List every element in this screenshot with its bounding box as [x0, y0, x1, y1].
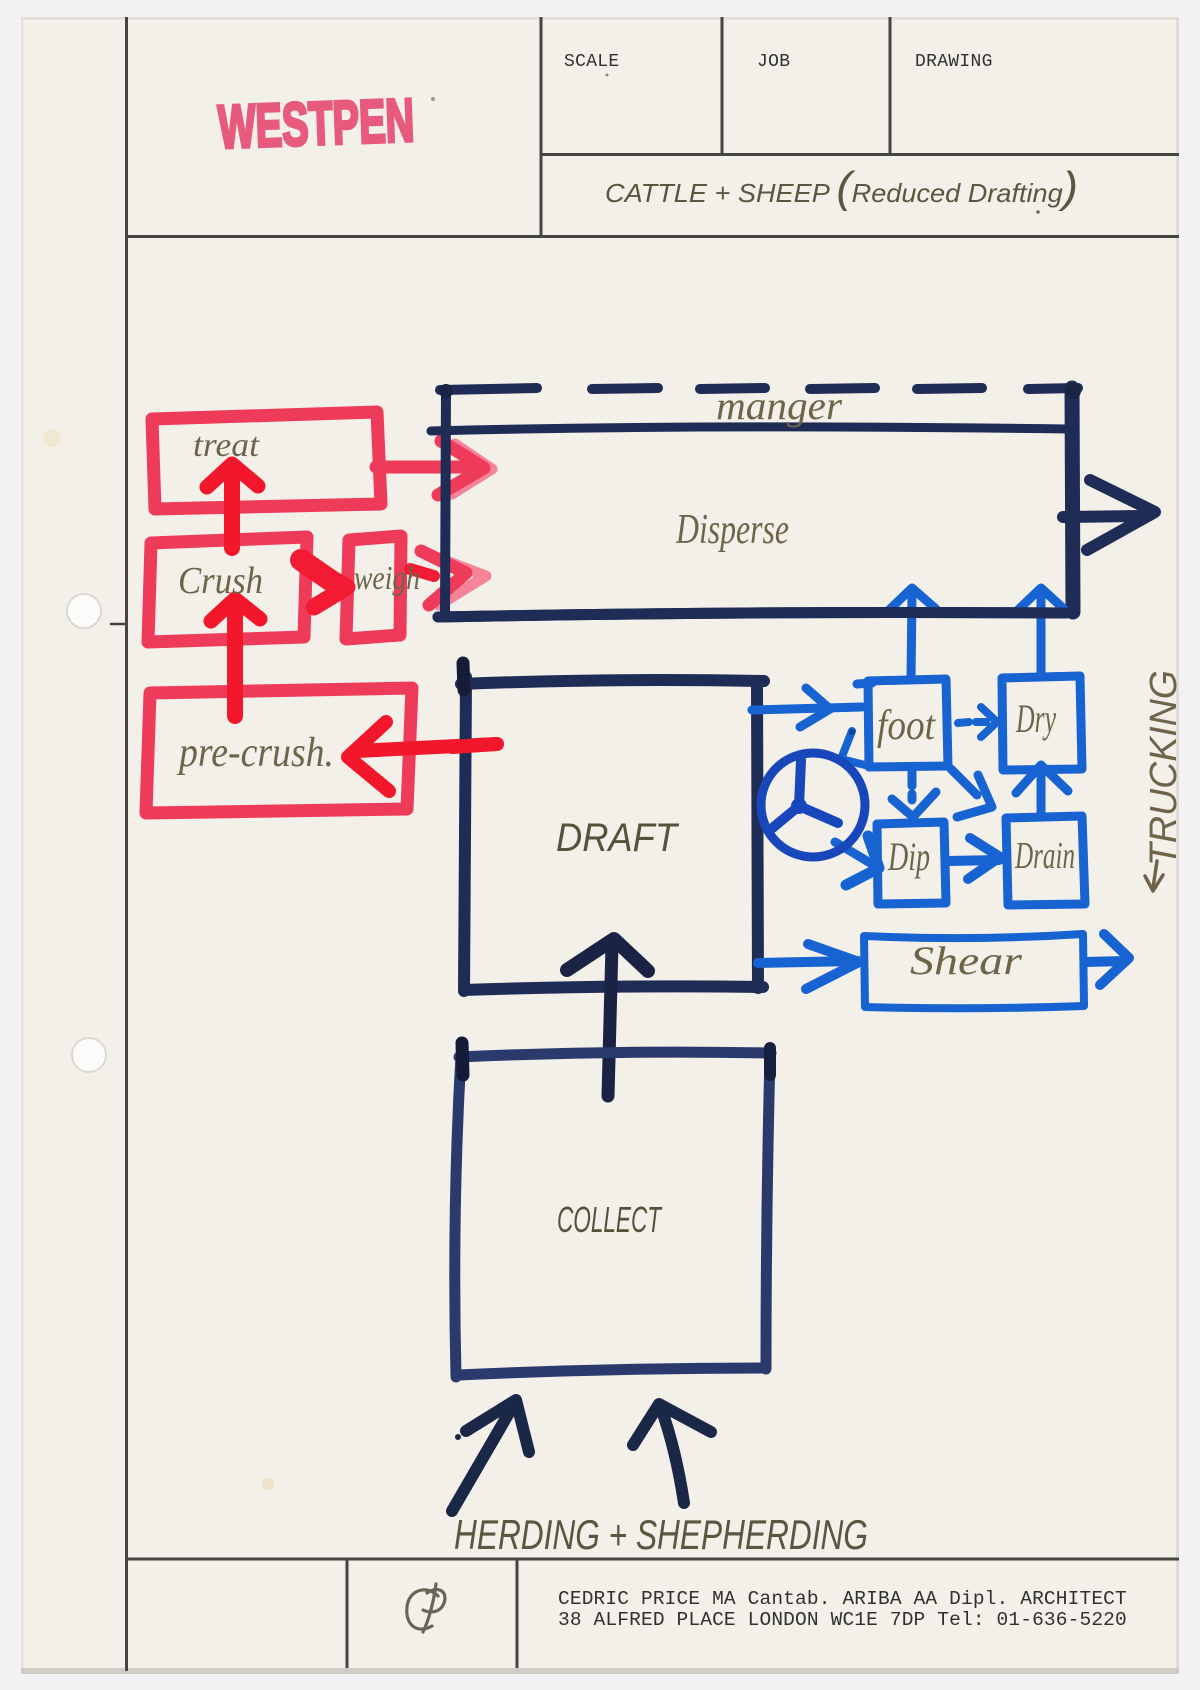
svg-text:Shear: Shear — [910, 938, 1023, 983]
svg-text:weigh: weigh — [354, 560, 420, 597]
svg-text:treat: treat — [193, 427, 261, 464]
svg-text:CEDRIC PRICE MA Cantab. ARIBA: CEDRIC PRICE MA Cantab. ARIBA AA Dipl. A… — [558, 1588, 1127, 1610]
svg-text:DRAFT: DRAFT — [556, 816, 679, 860]
svg-text:38 ALFRED PLACE LONDON WC1E 7D: 38 ALFRED PLACE LONDON WC1E 7DP Tel: 01-… — [558, 1609, 1127, 1631]
svg-text:Crush: Crush — [178, 560, 263, 602]
svg-text:DRAWING: DRAWING — [915, 52, 993, 72]
svg-text:foot: foot — [877, 703, 936, 749]
svg-text:TRUCKING: TRUCKING — [1143, 670, 1185, 866]
svg-text:pre-crush.: pre-crush. — [176, 730, 334, 776]
svg-text:manger: manger — [716, 383, 842, 428]
svg-text:Drain: Drain — [1014, 835, 1075, 877]
svg-text:Disperse: Disperse — [675, 507, 789, 553]
svg-text:WESTPEN: WESTPEN — [217, 86, 415, 161]
svg-text:COLLECT: COLLECT — [557, 1199, 663, 1240]
svg-text:SCALE: SCALE — [564, 52, 620, 72]
svg-text:Dip: Dip — [887, 834, 930, 879]
svg-text:Dry: Dry — [1015, 696, 1056, 741]
svg-text:JOB: JOB — [757, 52, 790, 72]
svg-text:HERDING + SHEPHERDING: HERDING + SHEPHERDING — [454, 1511, 868, 1558]
